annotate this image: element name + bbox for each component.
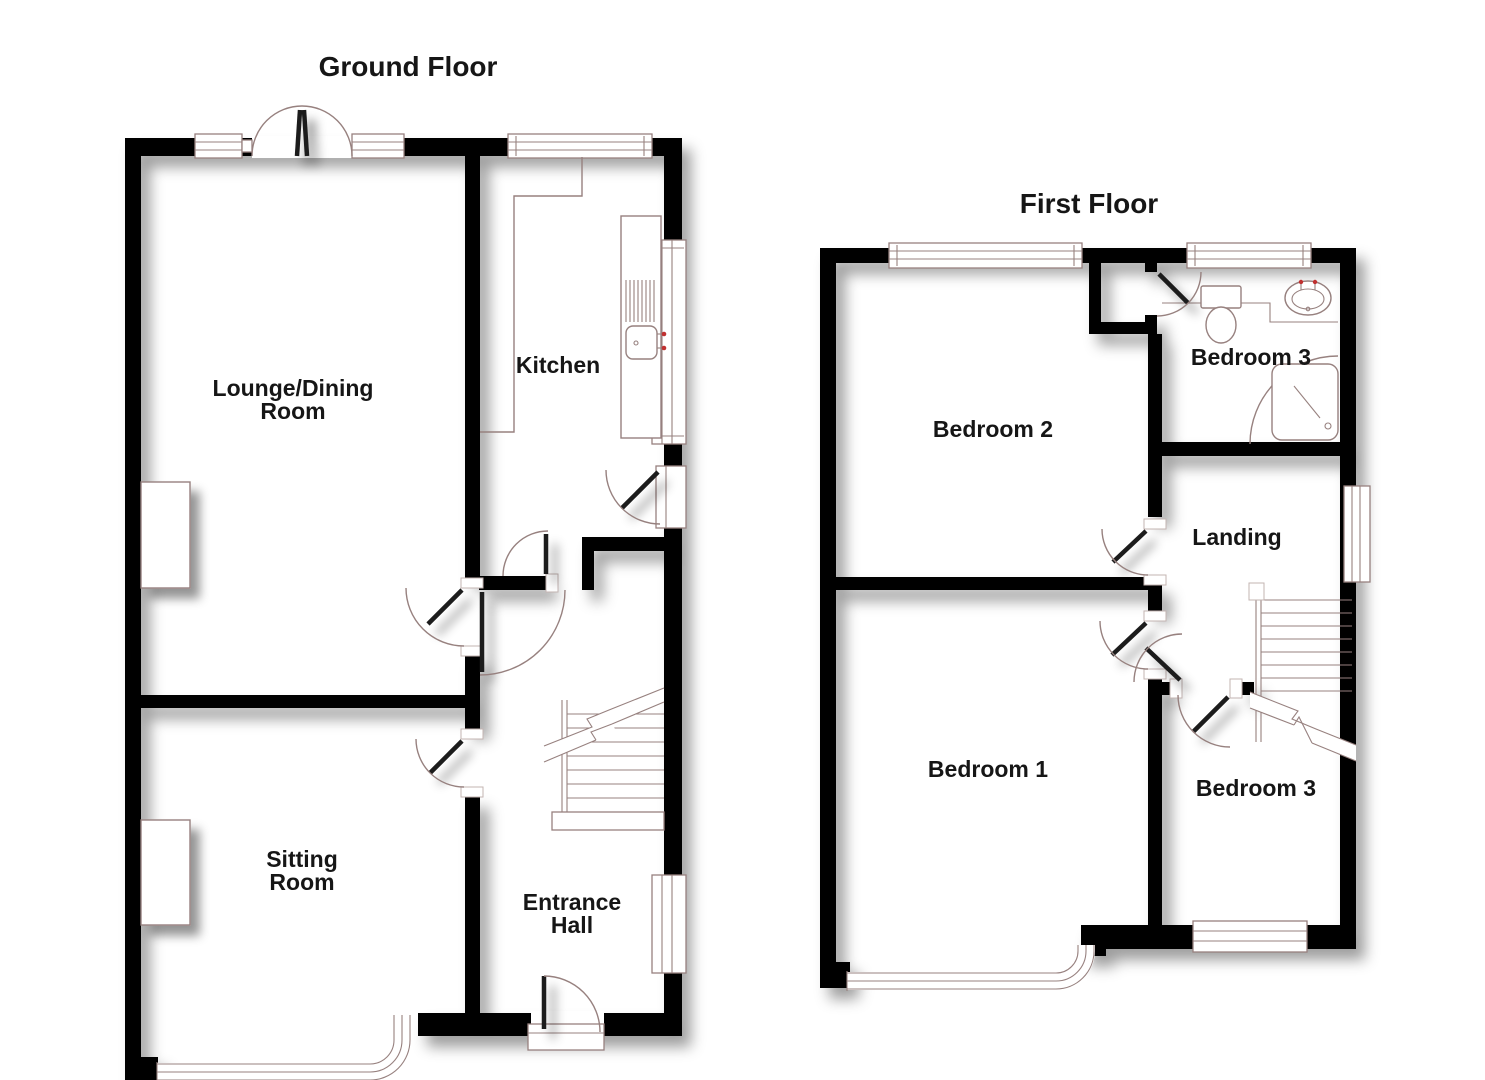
window-bedroom3-bottom <box>1193 921 1307 952</box>
ground-floor-plan: Ground Floor Lounge/Dining Room Kitchen … <box>125 51 686 1080</box>
front-door-threshold <box>528 1024 604 1050</box>
side-door-threshold <box>656 466 686 528</box>
first-floor-title: First Floor <box>1020 188 1159 219</box>
ground-windows <box>157 134 686 1080</box>
room-label-bathroom: Bedroom 3 <box>1191 344 1311 370</box>
kitchen-door-arc-in <box>503 531 548 576</box>
wash-basin-icon <box>1285 280 1331 315</box>
svg-text:Room: Room <box>260 398 325 424</box>
room-label-entrance-hall: Entrance Hall <box>523 889 621 938</box>
toilet-icon <box>1201 286 1241 343</box>
bay-window-sitting <box>157 1015 410 1080</box>
stair-newel <box>1249 583 1264 600</box>
first-floor-plan: First Floor Bedroom 2 Bedroom 3 Landing … <box>820 188 1370 991</box>
room-label-landing: Landing <box>1192 524 1281 550</box>
kitchen-sink-unit <box>621 216 666 438</box>
floorplan-svg: Ground Floor Lounge/Dining Room Kitchen … <box>0 0 1485 1080</box>
window-bedroom2-top <box>889 243 1082 268</box>
stairs-ground <box>544 688 664 830</box>
window-lounge-right <box>352 134 404 158</box>
room-label-bedroom3: Bedroom 3 <box>1196 775 1316 801</box>
floorplan-canvas: Ground Floor Lounge/Dining Room Kitchen … <box>0 0 1485 1080</box>
ground-floor-title: Ground Floor <box>319 51 498 82</box>
window-landing-right <box>1344 486 1370 582</box>
kitchen-door-arc-hall <box>480 590 565 675</box>
window-kitchen-top <box>508 134 652 158</box>
first-door-leaves <box>1112 274 1228 732</box>
room-label-bedroom1: Bedroom 1 <box>928 756 1048 782</box>
ground-walls <box>125 138 682 1080</box>
kitchen-counter <box>480 157 582 432</box>
bay-window-bedroom1 <box>847 945 1094 991</box>
room-label-lounge-dining: Lounge/Dining Room <box>213 375 374 424</box>
svg-text:Room: Room <box>269 869 334 895</box>
stairs-first <box>1249 583 1356 761</box>
svg-text:Hall: Hall <box>551 912 593 938</box>
window-bathroom-top <box>1187 243 1311 268</box>
window-hall-right <box>652 875 686 973</box>
room-label-sitting: Sitting Room <box>266 846 338 895</box>
room-label-kitchen: Kitchen <box>516 352 600 378</box>
french-door-opening <box>252 136 352 158</box>
room-label-bedroom2: Bedroom 2 <box>933 416 1053 442</box>
